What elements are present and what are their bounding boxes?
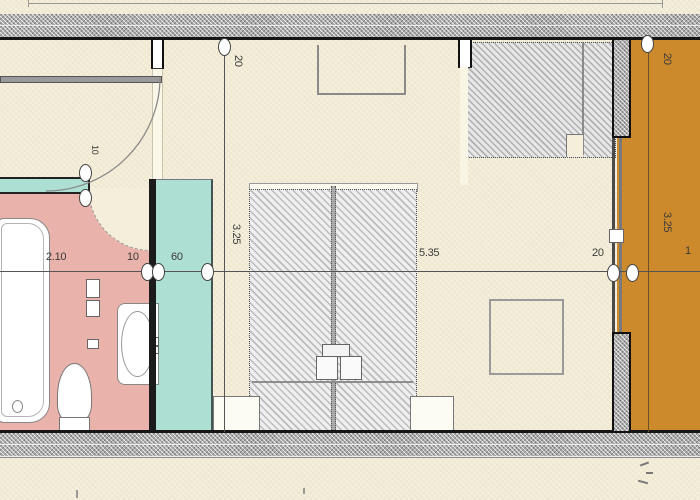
top-wall-outer-band (0, 14, 700, 25)
wall-fixture-3 (87, 339, 99, 349)
edge-tick (303, 488, 305, 494)
pillow-left (316, 356, 338, 380)
bathroom-partition-band (0, 177, 90, 194)
desk-outline (317, 45, 406, 95)
dim-label-right-wall-top: 20 (661, 53, 672, 65)
bed-right (333, 189, 417, 432)
partition-strip-mid (460, 67, 468, 185)
wardrobe-notch (566, 134, 583, 157)
dim-marker (152, 263, 165, 281)
wall-fixture-2 (86, 300, 100, 317)
dim-label-left-wall-top: 20 (232, 55, 243, 67)
bottom-wall (0, 433, 700, 457)
dim-marker (607, 264, 620, 282)
dim-label-wall-thin: 10 (127, 252, 139, 263)
wardrobe (460, 42, 616, 158)
partition-stub-mid (458, 40, 472, 68)
entry-door-swing-arc (46, 78, 160, 191)
floor-plan-canvas: 2.10 10 60 5.35 20 1 20 3.25 20 3.25 10 (0, 0, 700, 500)
closet-floor (155, 179, 213, 431)
wall-pier-top-right (612, 38, 631, 138)
faint-mark (646, 472, 653, 474)
dimension-line-vertical-left (224, 40, 225, 432)
bed-blanket-line (252, 381, 413, 383)
dim-marker (201, 263, 214, 281)
dim-label-left-room-depth: 3.25 (230, 224, 241, 244)
dim-label-right-room-depth: 3.25 (661, 212, 672, 232)
bottom-wall-outer-band (0, 445, 700, 456)
top-wall (0, 14, 700, 37)
dim-marker (641, 35, 654, 53)
bed-left (249, 189, 334, 432)
edge-tick (76, 490, 78, 498)
toilet-bowl (57, 363, 92, 423)
window-mullion (609, 229, 624, 243)
bathtub-drain (12, 400, 23, 413)
dim-label-bath-width: 2.10 (46, 252, 66, 263)
dim-label-wall-right: 20 (592, 248, 604, 259)
partition-strip-left (152, 69, 163, 179)
wall-pier-bottom-right (612, 332, 631, 433)
dim-label-balcony-width: 1 (685, 246, 691, 257)
wall-fixture-1 (86, 279, 100, 298)
faint-mark (638, 480, 648, 485)
top-wall-face-line (0, 37, 700, 40)
top-wall-inner-band (0, 26, 700, 37)
dimension-line-horizontal (0, 271, 700, 272)
edge-line-top (28, 3, 663, 4)
bed-center-divider (331, 186, 336, 430)
bottom-wall-inner-band (0, 433, 700, 444)
dim-label-closet-width: 60 (171, 252, 183, 263)
partition-stub-left (151, 40, 164, 69)
entry-door-leaf (0, 76, 162, 83)
nightstand-left (213, 396, 260, 434)
bathtub-inner-outline (1, 223, 44, 417)
dim-marker (79, 164, 92, 182)
pillow-right (340, 356, 362, 380)
dim-marker (218, 38, 231, 56)
table-outline (489, 299, 564, 375)
dim-label-room-width: 5.35 (419, 248, 439, 259)
nightstand-right (410, 396, 454, 434)
closet-left-wall (149, 179, 156, 430)
edge-tick (28, 0, 29, 7)
edge-tick (662, 0, 663, 8)
faint-mark (640, 462, 649, 467)
dim-marker (626, 264, 639, 282)
bottom-wall-edge-line (0, 457, 700, 458)
dimension-line-vertical-right (648, 48, 649, 432)
dim-label-partition: 10 (90, 145, 99, 154)
dim-marker (79, 189, 92, 207)
